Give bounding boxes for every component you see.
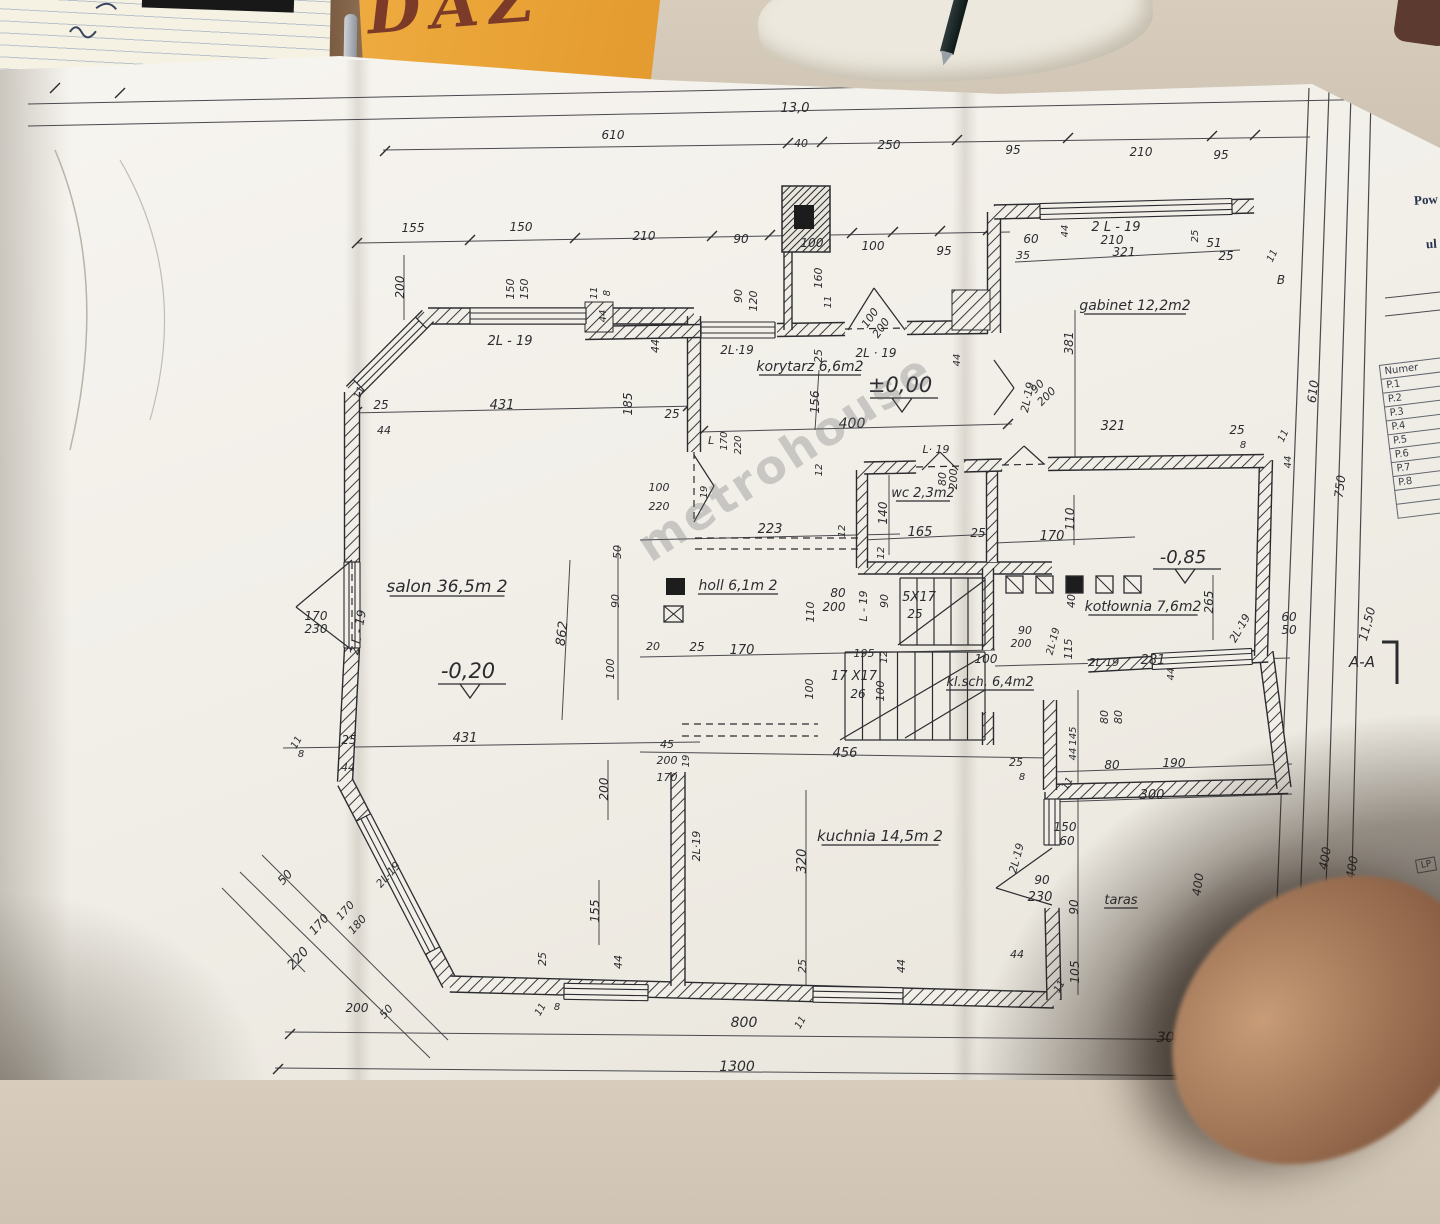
dimension-label: 80 [1112,710,1125,724]
dimension-label: 80 [1104,758,1120,772]
dimension-label: 155 [588,900,602,923]
dimension-label: 26 [850,687,866,701]
dimension-label: 200 [346,1001,369,1015]
window-symbol [1040,198,1232,219]
dimension-line [995,537,1135,543]
dimension-label: 95 [1005,143,1020,157]
dimension-label: 12 [876,547,887,560]
dimension-label: 2L·19 [1227,612,1254,645]
dimension-label: 90 [1018,624,1032,637]
dimension-tick [765,230,775,240]
wall-hatch [1048,461,1264,464]
dimension-label: 8 [554,1002,560,1013]
dimension-label: 195 [854,647,875,660]
window-symbol [470,308,586,324]
dimension-label: 11 [589,287,600,300]
dimension-label: 200 [1011,637,1032,650]
dimension-label: 25 [341,733,356,747]
dimension-label: 456 [833,746,858,761]
dimension-label: 80 [1098,710,1111,724]
dimension-label: 25 [1218,249,1233,263]
beam-dashed-line [1002,464,1048,465]
porch-column-core [794,205,814,229]
dimension-label: 170 [1040,529,1065,544]
pencil-arc [55,150,87,450]
dimension-label: 25 [373,398,388,412]
dimension-line [285,1032,1245,1040]
dimension-label: 51 [1206,236,1221,250]
dimension-line [350,406,698,413]
dimension-line [357,232,1010,243]
dimension-label: 8 [602,290,613,296]
dimension-label: 11,50 [1356,605,1379,642]
dimension-tick [783,138,793,148]
dimension-line [28,76,1438,104]
section-cut-symbol [1382,642,1397,684]
dimension-label: 265 [1202,591,1216,614]
sticky-note-handwriting: DAZ [364,0,546,48]
section-marker-label: A-A [1348,653,1375,671]
dimension-label: 8 [1240,440,1246,451]
dimension-label: 44 [612,955,625,969]
dimension-label: 1300 [719,1059,755,1075]
wall-edge [964,459,1002,460]
window-symbol [1152,648,1253,669]
dimension-label: 11 [823,296,834,309]
room-label: holl 6,1m 2 [699,578,778,594]
radiator-symbol [1124,576,1141,593]
dimension-label: L [708,434,714,447]
dimension-label: 90 [609,594,622,608]
dimension-label: 750 [1332,474,1349,499]
dimension-label: 90 [1067,899,1081,915]
dimension-label: 50 [377,1002,396,1021]
level-marker-flag [1153,569,1221,583]
dimension-label: 300 [1140,788,1165,803]
dimension-label: 60 [1023,232,1039,246]
dimension-tick [817,137,827,147]
pencil-arc [120,160,165,420]
dimension-label: 44 [1010,948,1024,961]
dimension-label: 150 [518,279,531,300]
dimension-label: 100 [975,652,998,666]
wall-hatch [1266,652,1284,788]
dimension-label: 50 [275,867,296,888]
dimension-label: 140 [876,501,890,524]
dimension-label: 44 [649,339,662,353]
dimension-label: 170 [305,609,328,623]
dimension-label: 8 [1019,772,1025,783]
dimension-label: 150 [1054,820,1077,834]
dimension-label: 19 [681,755,692,768]
dimension-label: 8 [298,749,304,760]
door-flag [994,360,1014,388]
dimension-label: 200 [597,777,611,800]
radiator-symbol [1096,576,1113,593]
room-label: kl.sch. 6,4m2 [946,675,1033,690]
window-symbol [353,317,427,391]
dimension-tick [847,228,857,238]
dimension-label: 25 [1190,230,1201,243]
dimension-label: 40 [1065,594,1078,608]
wall-pier [952,290,990,330]
dimension-label: 13,0 [781,101,810,116]
dimension-tick [115,88,125,98]
dimension-label: 25 [664,407,679,421]
dimension-label: 165 [908,525,933,540]
dimension-label: 11 [1276,428,1291,444]
dimension-label: B [1277,273,1285,287]
dimension-label: 35 [1016,249,1030,262]
dimension-label: 25 [1009,756,1023,769]
wall-hatch [450,984,1054,1000]
radiator-symbol [1036,576,1053,593]
dimension-label: 90 [1034,873,1050,887]
dimension-label: 210 [1130,145,1153,159]
wall-edge [964,471,1002,472]
dimension-label: 90 [733,232,749,246]
dimension-label: 321 [1101,419,1126,434]
corner-object [1393,0,1440,48]
dimension-tick [1063,133,1073,143]
dimension-label: 44 [1060,225,1071,238]
dimension-label: 230 [1028,890,1053,905]
dimension-label: 25 [689,640,704,654]
dimension-tick [707,231,717,241]
room-label: korytarz 6,6m2 [756,359,863,375]
dimension-label: 100 [862,239,885,253]
dimension-tick [465,235,475,245]
dimension-label: 115 [1062,639,1075,660]
dimension-label: 60 [1281,610,1297,624]
dimension-label: 150 [510,220,533,234]
dimension-tick [285,1029,295,1039]
dimension-label: 800 [731,1015,758,1031]
floor-plan-sheet: 13,0610402509521095155150210901001009520… [0,0,1440,1080]
dimension-label: 100 [801,236,824,250]
dimension-label: 610 [602,128,625,142]
dimension-label: 25 [536,952,549,966]
dimension-label: 320 [795,849,810,874]
dimension-label: 50 [1281,623,1297,637]
dimension-label: 2L·19 [1006,842,1026,875]
dimension-label: 400 [1190,872,1207,897]
dimension-label: 17 X17 [831,669,878,684]
chimney-symbol [666,578,685,595]
radiator-symbol [1066,576,1083,593]
wall-hatch [1261,460,1266,656]
dimension-label: 210 [633,229,656,243]
dimension-label: 150 [504,279,517,300]
dimension-label: 25 [1229,423,1244,437]
dimension-label: 44 [1166,668,1177,681]
dimension-label: L· 19 [922,443,949,456]
dimension-label: 200 [823,600,846,614]
dimension-label: 90 [732,289,745,303]
dimension-label: 223 [758,522,783,537]
dimension-label: 40 [794,137,808,150]
dimension-label: 200 [393,275,407,298]
dimension-tick [935,226,945,236]
dimension-label: 200 [657,754,678,767]
dimension-label: 185 [621,393,635,416]
dimension-label: 321 [1113,245,1136,259]
dimension-label: 100 [604,659,617,680]
flue-symbol [664,606,683,622]
door-flag [1004,446,1024,465]
dimension-label: 431 [490,398,515,413]
dimension-label: 12 [837,525,848,538]
room-label: kotłownia 7,6m2 [1085,599,1202,615]
room-label: salon 36,5m 2 [386,577,507,597]
room-label: taras [1104,893,1137,908]
dimension-label: 95 [1213,148,1228,162]
dimension-tick [1250,130,1260,140]
dimension-label: 25 [970,526,985,540]
dimension-label: 105 [1068,961,1082,984]
dimension-line [1385,310,1440,316]
window-symbol [813,986,903,1004]
level-marker-flag [438,684,506,698]
dimension-label: 20 [646,640,660,653]
window-symbol [356,814,439,955]
dimension-label: 2L·19 [720,343,753,357]
dimension-label: 45 [660,738,674,751]
dimension-label: 381 [1062,332,1076,355]
dimension-label: 400 [1316,845,1334,870]
binder-clip [344,14,358,62]
window-symbol [701,322,775,338]
dimension-label: 431 [453,731,478,746]
dimension-label: 44 [1283,456,1294,469]
dimension-label: 44 [341,761,355,774]
wall-hatch [864,467,916,468]
dimension-label: 610 [1305,379,1322,404]
dimension-label: 2L - 19 [487,334,532,349]
wall-edge [864,473,916,474]
dimension-tick [50,83,60,93]
dimension-label: 100 [874,681,887,702]
dimension-label: 11 [1265,248,1280,264]
dimension-label: 862 [554,620,572,646]
dimension-label: 110 [804,602,817,623]
dimension-label: 170 [306,911,332,938]
dimension-tick [1207,131,1217,141]
dimension-label: 230 [305,622,328,636]
panel-heading-pow: Pow [1413,191,1438,209]
dimension-label: 170 [719,431,730,450]
dimension-label: 11 [533,1001,549,1018]
window-symbol [564,983,648,1000]
room-label: gabinet 12,2m2 [1079,298,1190,314]
dimension-label: 155 [402,221,425,235]
dimension-label: 90 [878,594,891,608]
dimension-label: 170 [657,771,678,784]
beam-dashed-line [916,466,964,467]
dimension-label: 2L·19 [690,831,703,862]
dimension-label: 145 [1068,726,1079,745]
dimension-label: 80 [830,586,846,600]
dimension-label: 44 [377,424,391,437]
dimension-label: 100 [649,481,670,494]
dimension-label: 190 [1163,756,1186,770]
dimension-label: 44 [1068,748,1079,761]
level-marker-label: -0,20 [441,659,495,683]
dimension-label: 25 [796,959,809,973]
dimension-line [28,98,1438,126]
dimension-label: 44 [895,959,908,973]
dimension-label: 120 [747,291,760,312]
dimension-label: 250 [878,138,901,152]
dimension-label: 170 [730,643,755,658]
room-label: kuchnia 14,5m 2 [817,827,943,845]
dimension-label: 2L·19 [1089,656,1120,669]
floor-plan-drawing: 13,0610402509521095155150210901001009520… [0,0,1440,1080]
dimension-label: 2L·19 [1045,626,1063,656]
dimension-label: 110 [1063,507,1077,530]
dimension-tick [952,135,962,145]
dimension-label: 60 [1059,834,1075,848]
dimension-label: 281 [1141,653,1166,668]
dimension-label: 11 [793,1014,809,1031]
dimension-label: 5X17 [902,590,936,605]
wall-edge [864,461,916,462]
door-flag [994,388,1014,415]
dimension-label: L - 19 [857,590,870,621]
panel-heading-ul: ul [1425,236,1437,253]
radiator-symbol [1006,576,1023,593]
dimension-tick [380,146,390,156]
dimension-tick [570,233,580,243]
dimension-label: 160 [812,268,825,289]
wall-edge [777,335,845,336]
dimension-tick [888,227,898,237]
dimension-label: 100 [803,679,816,700]
level-marker-label: -0,85 [1160,547,1207,568]
dimension-line [383,137,1310,150]
dimension-line [275,1068,1235,1076]
dimension-tick [273,1064,283,1074]
door-flag [1024,446,1044,464]
dimension-label: 25 [907,607,922,621]
wall-hatch [1046,786,1288,792]
dimension-label: 220 [285,944,313,972]
room-label: wc 2,3m2 [891,486,955,501]
dimension-label: 44 [598,310,609,323]
dimension-label: 95 [936,244,951,258]
dimension-line [1385,292,1440,298]
dimension-label: 12 [879,651,890,664]
wall-hatch [964,465,1002,466]
